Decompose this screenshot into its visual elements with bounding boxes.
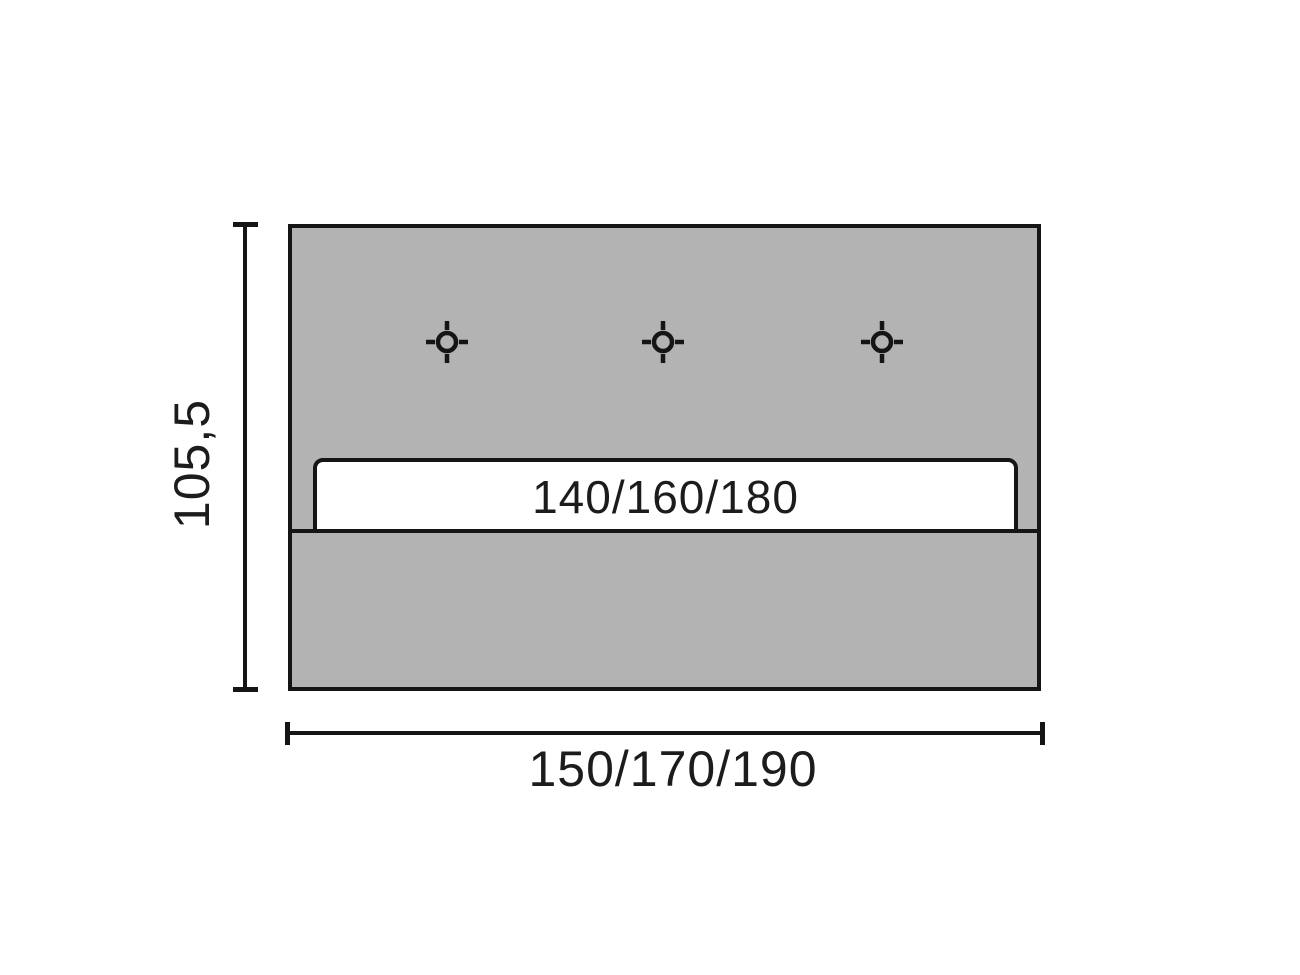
height-dimension-line [243,224,247,691]
width-dimension-tick-left [285,722,290,745]
diagram-canvas: 140/160/180 105,5 150/170/190 [0,0,1300,975]
inner-width-label-bar: 140/160/180 [313,458,1018,533]
width-dimension-line [287,731,1044,735]
width-dimension-label: 150/170/190 [423,740,923,798]
crosshair-target-icon [641,320,685,364]
height-dimension-label: 105,5 [162,354,222,574]
crosshair-target-icon [425,320,469,364]
height-dimension-tick-top [233,222,258,227]
crosshair-target-icon [860,320,904,364]
width-dimension-tick-right [1040,722,1045,745]
height-dimension-tick-bottom [233,687,258,692]
inner-width-label: 140/160/180 [532,472,799,520]
